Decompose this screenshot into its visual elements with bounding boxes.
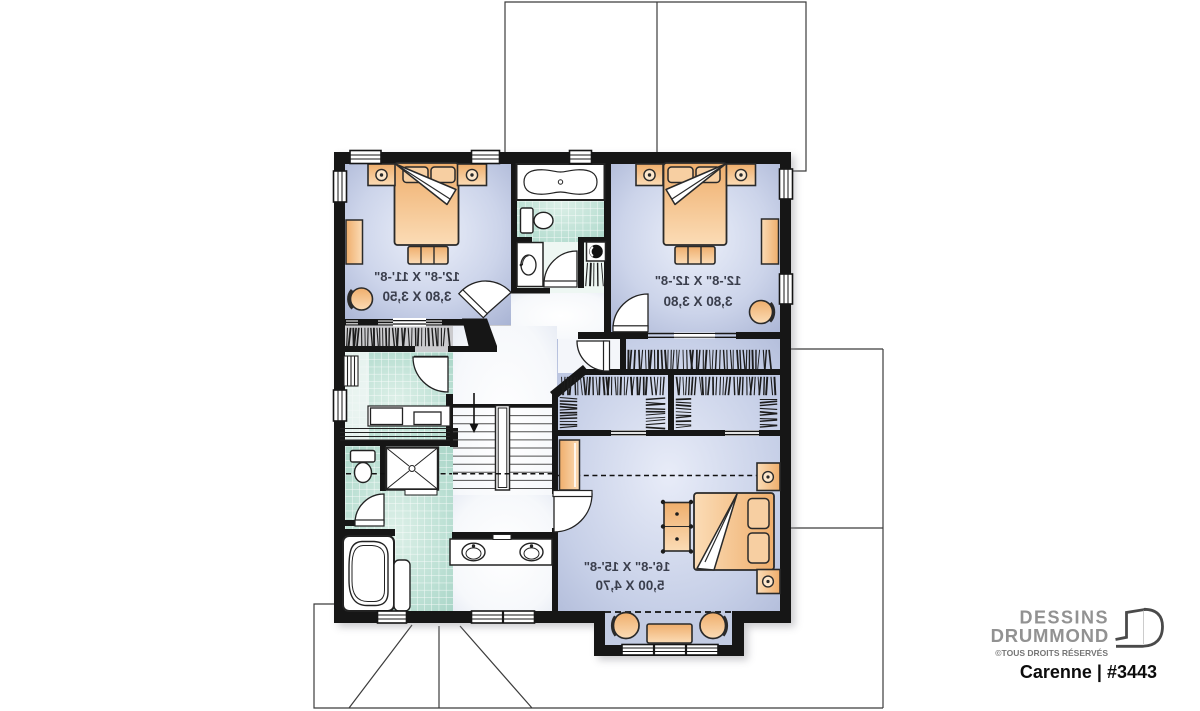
svg-text:DRUMMOND: DRUMMOND (991, 625, 1109, 646)
svg-text:12'-8" X 11'-8": 12'-8" X 11'-8" (374, 269, 460, 284)
svg-text:3,80 X 3,50: 3,80 X 3,50 (382, 289, 451, 304)
svg-text:Carenne | #3443: Carenne | #3443 (1020, 662, 1157, 682)
svg-text:3,80 X 3,80: 3,80 X 3,80 (663, 294, 732, 309)
svg-text:©TOUS DROITS RÉSERVÉS: ©TOUS DROITS RÉSERVÉS (995, 648, 1108, 658)
svg-text:16'-8" X 15'-8": 16'-8" X 15'-8" (584, 559, 670, 574)
svg-text:12'-8" X 12'-8": 12'-8" X 12'-8" (655, 273, 741, 288)
svg-text:5,00 X 4,70: 5,00 X 4,70 (595, 578, 664, 593)
